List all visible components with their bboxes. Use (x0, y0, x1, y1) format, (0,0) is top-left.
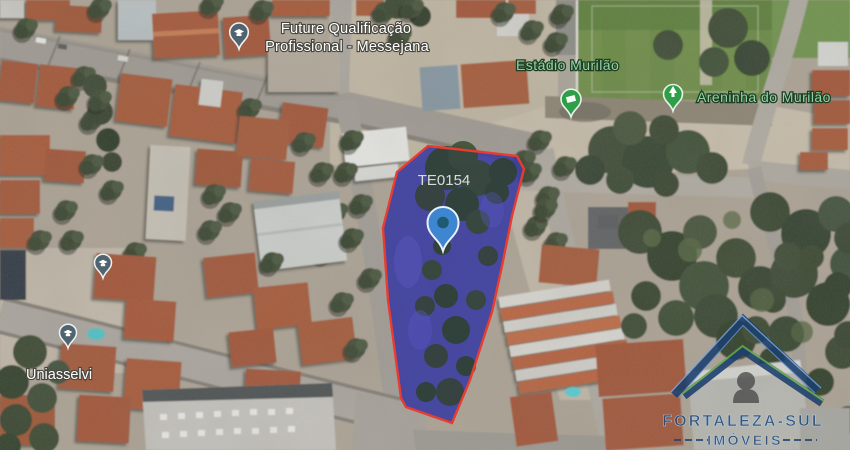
svg-text:FORTALEZA-SUL: FORTALEZA-SUL (662, 413, 824, 430)
svg-text:Areninha do Murilão: Areninha do Murilão (697, 89, 831, 105)
svg-text:TE0154: TE0154 (418, 172, 471, 189)
svg-text:Estádio Murilão: Estádio Murilão (516, 57, 619, 73)
svg-text:IMÓVEIS: IMÓVEIS (707, 431, 783, 448)
svg-text:Uniasselvi: Uniasselvi (26, 367, 92, 383)
svg-text:Future Qualificação: Future Qualificação (281, 21, 411, 37)
svg-text:Profissional - Messejana: Profissional - Messejana (265, 39, 429, 55)
